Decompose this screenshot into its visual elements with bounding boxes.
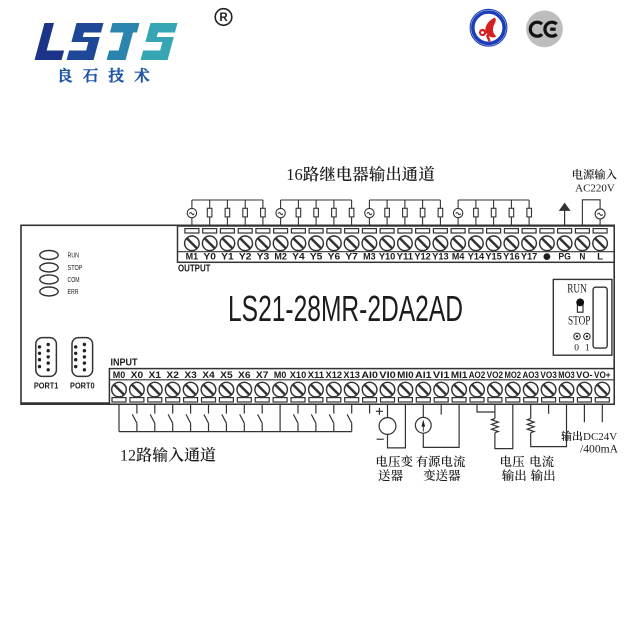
svg-text:M4: M4 — [452, 252, 465, 262]
svg-text:PORT1: PORT1 — [34, 381, 59, 391]
svg-text:输出: 输出 — [501, 466, 527, 484]
svg-text:Y11: Y11 — [397, 252, 414, 262]
svg-text:/400mA: /400mA — [580, 443, 619, 456]
svg-text:STOP: STOP — [568, 314, 591, 328]
svg-text:X4: X4 — [202, 370, 215, 380]
svg-text:M0: M0 — [274, 370, 287, 380]
svg-text:Y14: Y14 — [468, 252, 485, 262]
svg-text:送器: 送器 — [378, 466, 404, 484]
svg-text:Y5: Y5 — [310, 252, 323, 262]
svg-text:AI0: AI0 — [361, 370, 378, 380]
svg-text:PG: PG — [558, 252, 571, 262]
svg-text:X7: X7 — [256, 370, 269, 380]
svg-text:Y10: Y10 — [379, 252, 396, 262]
svg-text:AI1: AI1 — [415, 370, 432, 380]
svg-text:X12: X12 — [326, 370, 343, 380]
svg-text:LS21-28MR-2DA2AD: LS21-28MR-2DA2AD — [228, 288, 463, 329]
svg-text:X1: X1 — [149, 370, 162, 380]
svg-text:VI0: VI0 — [379, 370, 396, 380]
svg-text:Y0: Y0 — [203, 252, 216, 262]
svg-text:0: 0 — [574, 344, 579, 354]
svg-text:X0: X0 — [131, 370, 144, 380]
svg-text:MO2: MO2 — [505, 370, 522, 380]
svg-text:X13: X13 — [343, 370, 360, 380]
svg-text:Y6: Y6 — [328, 252, 341, 262]
svg-text:输出DC24V: 输出DC24V — [561, 428, 617, 444]
svg-text:电源输入: 电源输入 — [572, 166, 618, 182]
svg-text:变送器: 变送器 — [423, 466, 461, 484]
svg-text:M0: M0 — [113, 370, 126, 380]
svg-text:X10: X10 — [290, 370, 307, 380]
svg-text:Y17: Y17 — [521, 252, 538, 262]
svg-text:X5: X5 — [220, 370, 233, 380]
svg-text:1: 1 — [585, 344, 590, 354]
svg-text:AC220V: AC220V — [575, 182, 615, 194]
svg-text:COM: COM — [68, 275, 80, 284]
svg-text:ERR: ERR — [68, 287, 79, 296]
svg-text:Y16: Y16 — [503, 252, 520, 262]
svg-text:Y15: Y15 — [485, 252, 502, 262]
svg-text:RUN: RUN — [68, 251, 80, 260]
svg-text:PORT0: PORT0 — [70, 381, 95, 391]
svg-text:Y2: Y2 — [239, 252, 252, 262]
svg-text:VO2: VO2 — [487, 370, 504, 380]
svg-text:RUN: RUN — [567, 282, 587, 296]
svg-text:STOP: STOP — [68, 263, 83, 272]
svg-text:INPUT: INPUT — [111, 358, 138, 369]
svg-text:VO+: VO+ — [594, 370, 611, 380]
svg-text:Y4: Y4 — [292, 252, 305, 262]
svg-text:VO-: VO- — [576, 370, 593, 380]
svg-text:MI1: MI1 — [451, 370, 468, 380]
svg-text:M2: M2 — [274, 252, 287, 262]
svg-text:12路输入通道: 12路输入通道 — [120, 442, 216, 465]
svg-text:AO2: AO2 — [469, 370, 486, 380]
svg-text:AO3: AO3 — [522, 370, 539, 380]
svg-text:M1: M1 — [186, 252, 199, 262]
svg-text:X2: X2 — [166, 370, 179, 380]
svg-text:X3: X3 — [184, 370, 197, 380]
svg-text:Y12: Y12 — [414, 252, 431, 262]
svg-text:Y1: Y1 — [221, 252, 234, 262]
svg-text:输出: 输出 — [530, 466, 556, 484]
svg-text:MO3: MO3 — [558, 370, 575, 380]
svg-text:L: L — [597, 252, 604, 262]
svg-text:VO3: VO3 — [540, 370, 557, 380]
svg-text:Y3: Y3 — [257, 252, 270, 262]
svg-text:VI1: VI1 — [433, 370, 450, 380]
svg-text:Y7: Y7 — [345, 252, 358, 262]
svg-text:N: N — [579, 252, 585, 262]
svg-text:X11: X11 — [308, 370, 325, 380]
svg-text:16路继电器输出通道: 16路继电器输出通道 — [286, 161, 435, 185]
svg-text:OUTPUT: OUTPUT — [178, 263, 211, 274]
svg-text:X6: X6 — [238, 370, 251, 380]
svg-text:Y13: Y13 — [432, 252, 449, 262]
svg-text:M3: M3 — [363, 252, 376, 262]
svg-text:MI0: MI0 — [397, 370, 414, 380]
